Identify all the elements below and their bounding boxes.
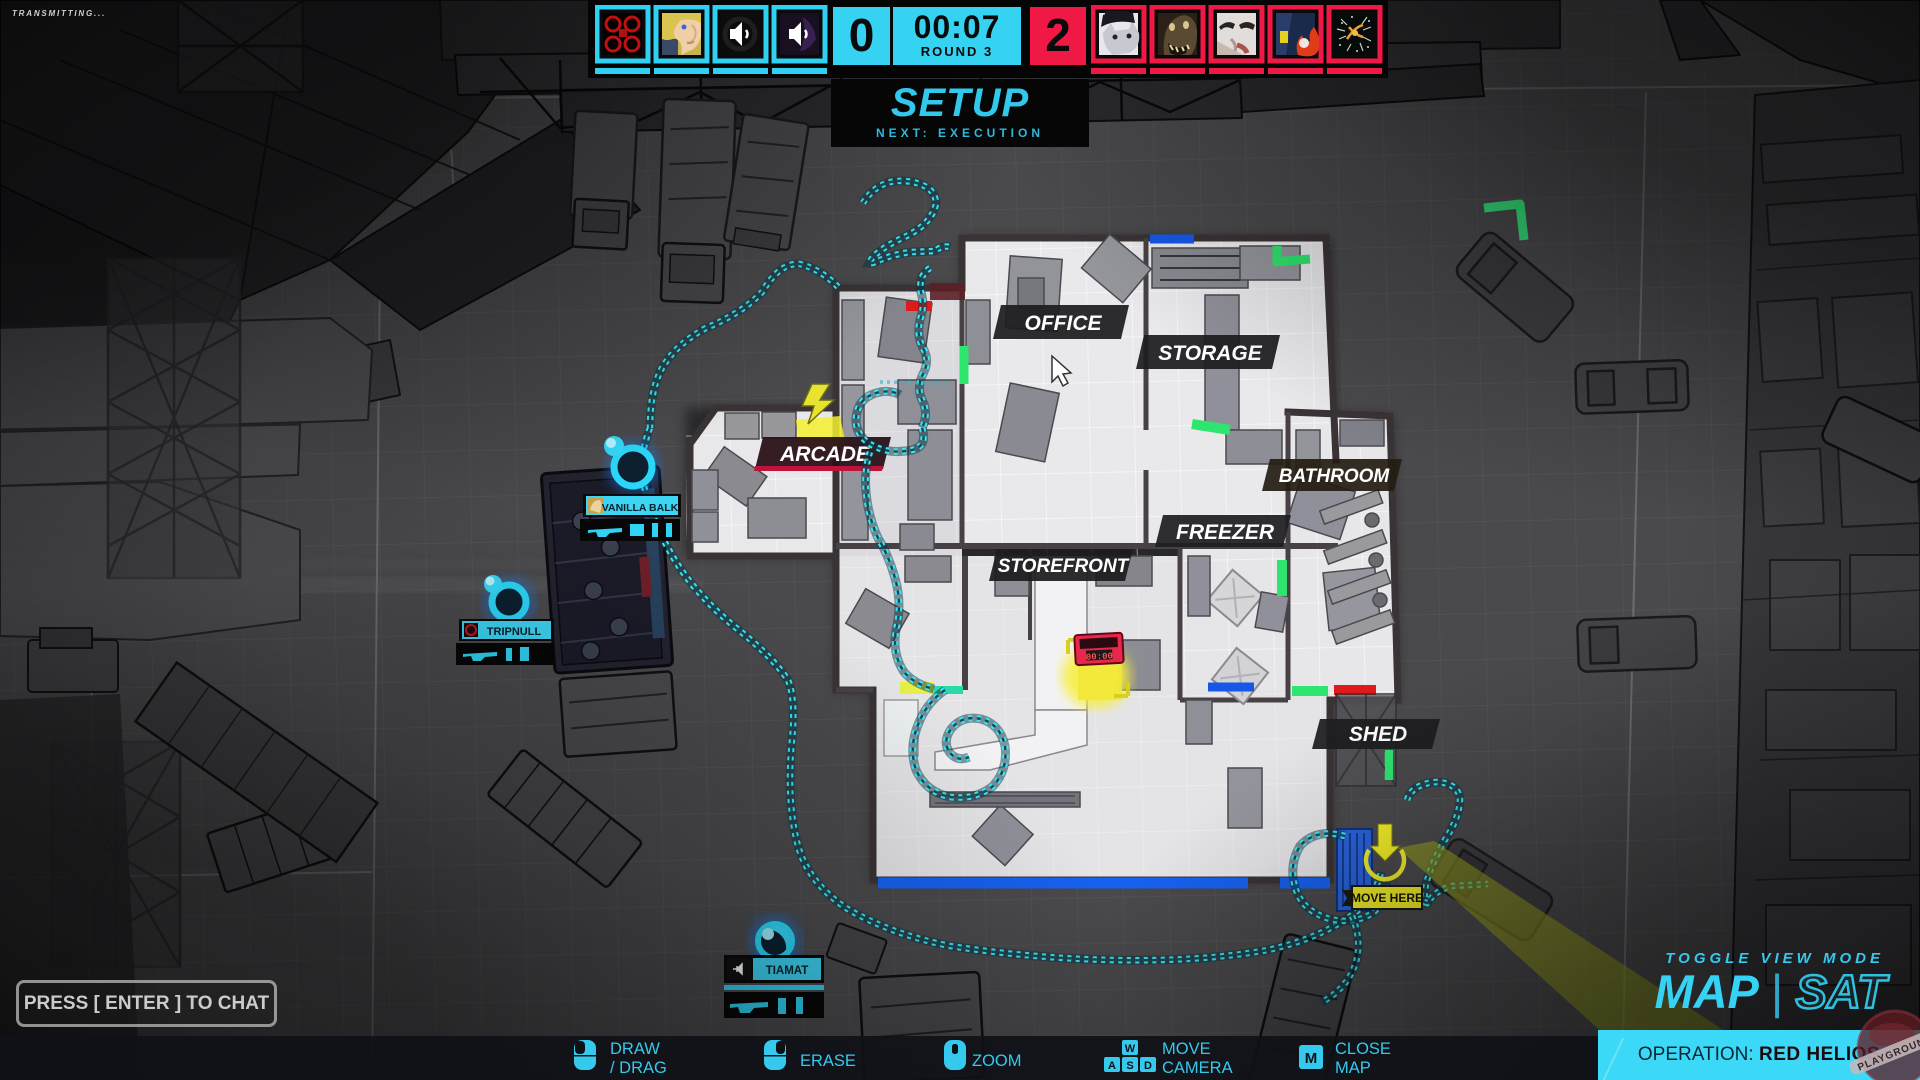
svg-text:CAMERA: CAMERA xyxy=(1162,1059,1233,1077)
svg-text:MAP: MAP xyxy=(1335,1059,1371,1077)
svg-text:W: W xyxy=(1125,1043,1136,1055)
svg-text:MOVE: MOVE xyxy=(1162,1040,1211,1058)
svg-text:DRAW: DRAW xyxy=(610,1040,660,1058)
svg-text:/ DRAG: / DRAG xyxy=(610,1059,667,1077)
svg-text:CLOSE: CLOSE xyxy=(1335,1040,1391,1058)
svg-text:M: M xyxy=(1305,1050,1318,1067)
svg-text:ZOOM: ZOOM xyxy=(972,1052,1022,1070)
svg-text:S: S xyxy=(1126,1060,1133,1072)
svg-text:ERASE: ERASE xyxy=(800,1052,856,1070)
svg-text:D: D xyxy=(1144,1060,1152,1072)
svg-text:A: A xyxy=(1108,1060,1116,1072)
